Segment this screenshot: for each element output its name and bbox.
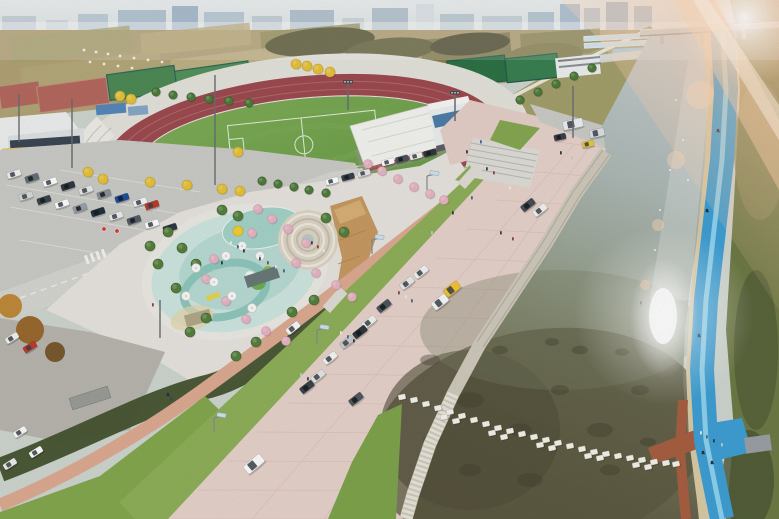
riverside-park-aerial-rendering	[0, 0, 779, 519]
film-grain	[0, 0, 779, 519]
rendering-canvas	[0, 0, 779, 519]
